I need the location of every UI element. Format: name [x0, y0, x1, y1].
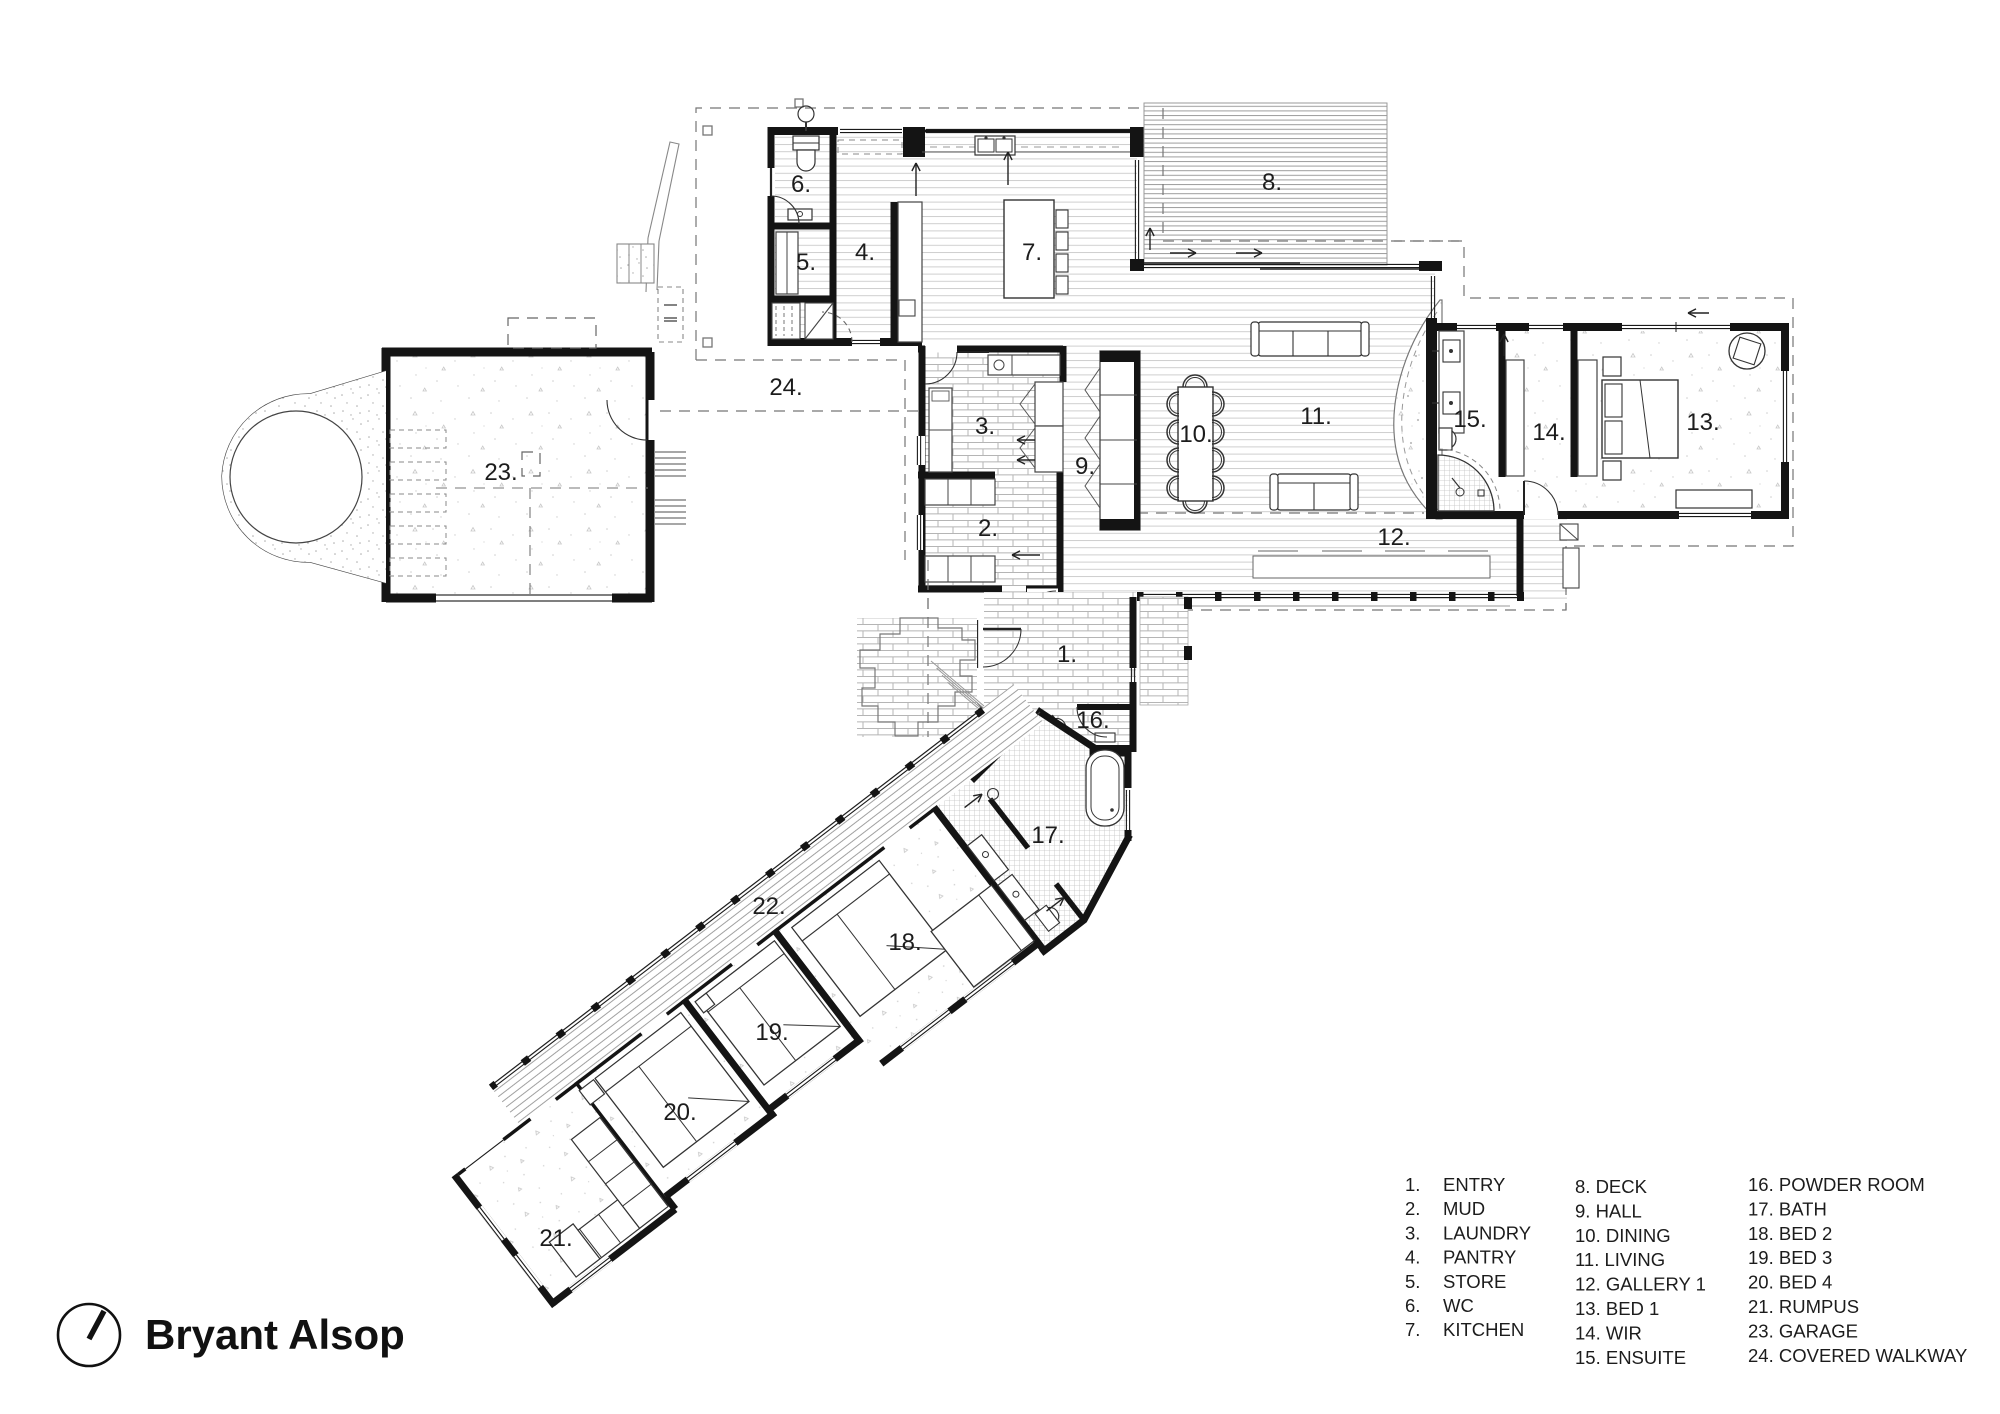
- svg-text:10. DINING: 10. DINING: [1575, 1225, 1671, 1246]
- svg-text:LAUNDRY: LAUNDRY: [1443, 1222, 1531, 1243]
- svg-text:18.: 18.: [888, 929, 921, 956]
- svg-text:1.: 1.: [1405, 1174, 1420, 1195]
- svg-text:Bryant Alsop: Bryant Alsop: [145, 1311, 405, 1358]
- svg-text:22.: 22.: [752, 893, 785, 920]
- svg-text:16.: 16.: [1076, 707, 1109, 734]
- svg-text:KITCHEN: KITCHEN: [1443, 1319, 1524, 1340]
- svg-text:13. BED 1: 13. BED 1: [1575, 1298, 1659, 1319]
- svg-text:12.: 12.: [1377, 524, 1410, 551]
- svg-text:WC: WC: [1443, 1295, 1474, 1316]
- svg-text:MUD: MUD: [1443, 1198, 1485, 1219]
- svg-text:ENTRY: ENTRY: [1443, 1174, 1505, 1195]
- svg-text:7.: 7.: [1022, 239, 1042, 266]
- svg-text:STORE: STORE: [1443, 1271, 1506, 1292]
- svg-text:3.: 3.: [1405, 1222, 1420, 1243]
- svg-text:16. POWDER ROOM: 16. POWDER ROOM: [1748, 1174, 1925, 1195]
- svg-text:9.: 9.: [1075, 453, 1095, 480]
- svg-text:2.: 2.: [978, 515, 998, 542]
- svg-text:24.: 24.: [769, 374, 802, 401]
- svg-text:12. GALLERY 1: 12. GALLERY 1: [1575, 1274, 1706, 1295]
- svg-text:9. HALL: 9. HALL: [1575, 1200, 1642, 1221]
- svg-text:11. LIVING: 11. LIVING: [1575, 1249, 1665, 1270]
- svg-text:7.: 7.: [1405, 1319, 1420, 1340]
- svg-text:17.: 17.: [1031, 822, 1064, 849]
- svg-text:5.: 5.: [796, 249, 816, 276]
- svg-text:20. BED 4: 20. BED 4: [1748, 1272, 1832, 1293]
- svg-text:19. BED 3: 19. BED 3: [1748, 1247, 1832, 1268]
- svg-text:23. GARAGE: 23. GARAGE: [1748, 1320, 1858, 1341]
- svg-text:15.: 15.: [1453, 406, 1486, 433]
- svg-text:6.: 6.: [791, 171, 811, 198]
- svg-text:21.: 21.: [539, 1225, 572, 1252]
- svg-text:8.: 8.: [1262, 169, 1282, 196]
- svg-text:21. RUMPUS: 21. RUMPUS: [1748, 1296, 1859, 1317]
- svg-text:19.: 19.: [755, 1019, 788, 1046]
- svg-text:18. BED 2: 18. BED 2: [1748, 1223, 1832, 1244]
- svg-text:4.: 4.: [855, 239, 875, 266]
- svg-text:10.: 10.: [1179, 421, 1212, 448]
- svg-text:5.: 5.: [1405, 1271, 1420, 1292]
- svg-text:17. BATH: 17. BATH: [1748, 1198, 1827, 1219]
- svg-text:15. ENSUITE: 15. ENSUITE: [1575, 1347, 1686, 1368]
- svg-text:1.: 1.: [1057, 641, 1077, 668]
- svg-text:20.: 20.: [663, 1099, 696, 1126]
- svg-text:24. COVERED WALKWAY: 24. COVERED WALKWAY: [1748, 1345, 1967, 1366]
- svg-text:6.: 6.: [1405, 1295, 1420, 1316]
- svg-text:PANTRY: PANTRY: [1443, 1247, 1516, 1268]
- svg-text:8. DECK: 8. DECK: [1575, 1176, 1648, 1197]
- svg-text:2.: 2.: [1405, 1198, 1420, 1219]
- svg-text:14. WIR: 14. WIR: [1575, 1322, 1642, 1343]
- svg-text:11.: 11.: [1300, 403, 1332, 430]
- svg-text:14.: 14.: [1532, 419, 1565, 446]
- svg-text:23.: 23.: [484, 459, 517, 486]
- svg-text:4.: 4.: [1405, 1247, 1420, 1268]
- svg-text:3.: 3.: [975, 413, 995, 440]
- svg-text:13.: 13.: [1686, 409, 1719, 436]
